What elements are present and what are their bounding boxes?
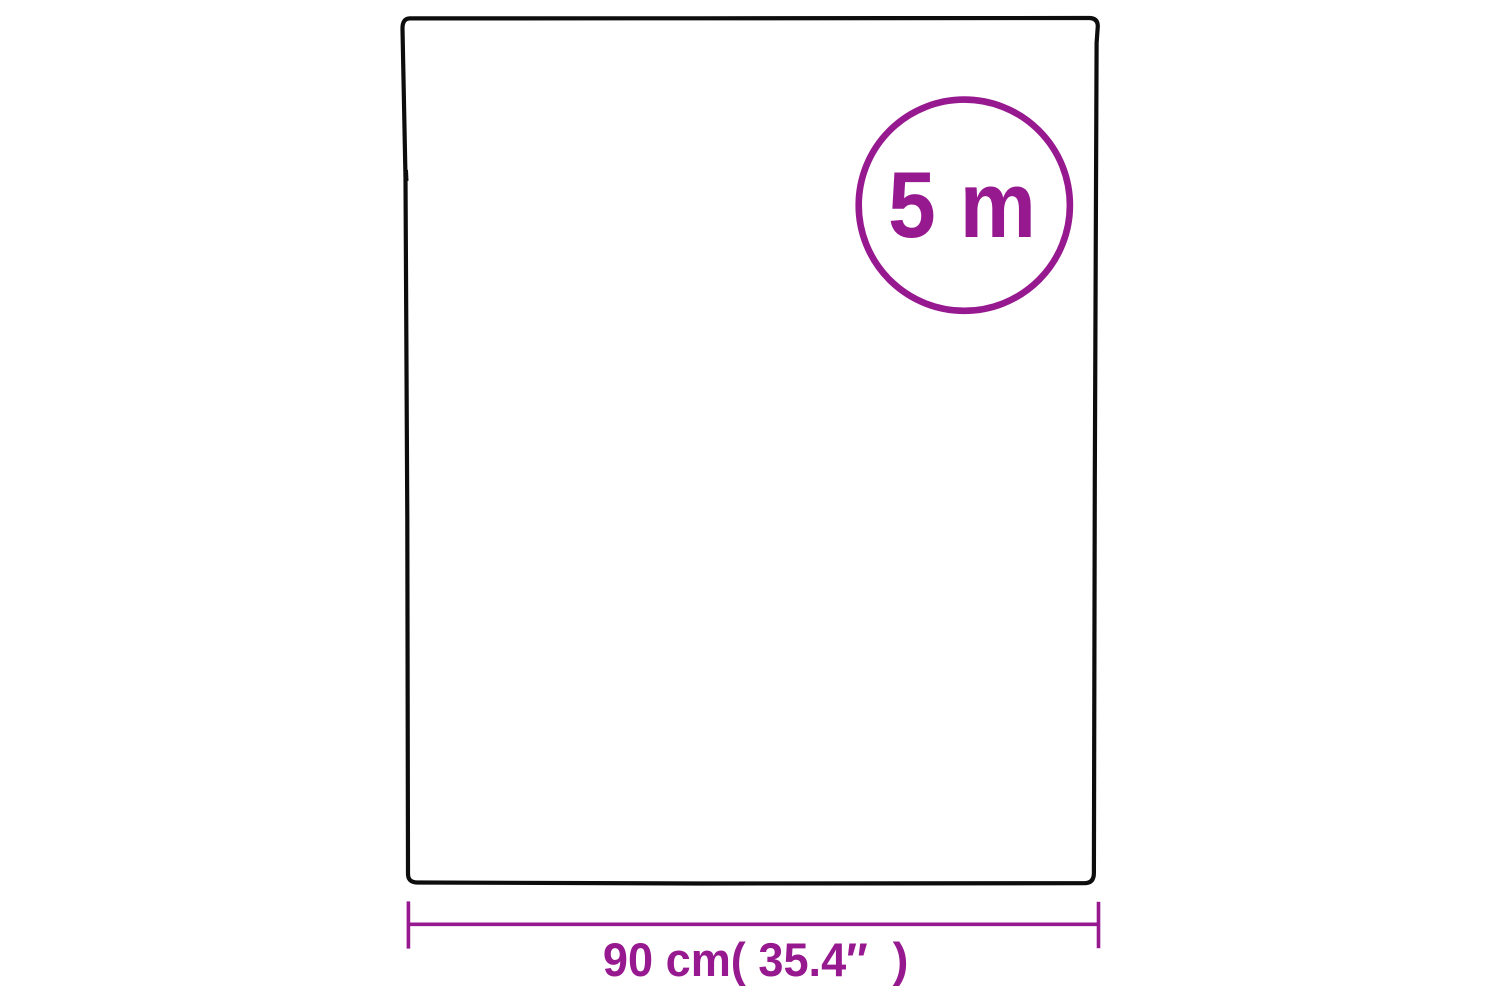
svg-text:5 m: 5 m (888, 152, 1036, 257)
svg-text:): ) (893, 934, 909, 987)
svg-text:90 cm( 35.4″: 90 cm( 35.4″ (603, 934, 868, 987)
